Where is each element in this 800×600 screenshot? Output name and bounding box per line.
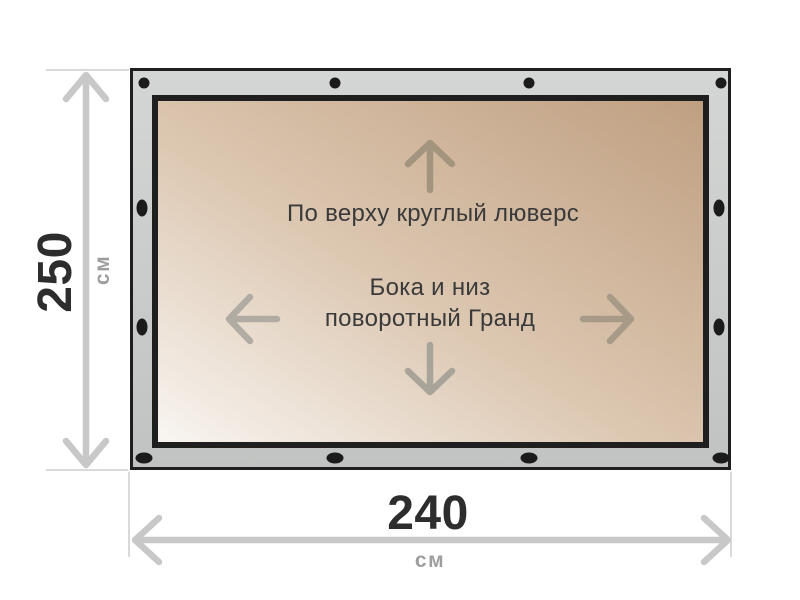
sides-bottom-label: Бока и низ поворотный Гранд bbox=[130, 272, 730, 334]
grommet-icon bbox=[330, 78, 341, 89]
grommet-icon bbox=[713, 453, 730, 464]
sides-bottom-label-line1: Бока и низ bbox=[130, 272, 730, 303]
sides-bottom-label-line2: поворотный Гранд bbox=[130, 303, 730, 334]
grommet-icon bbox=[136, 453, 153, 464]
grommet-icon bbox=[327, 453, 344, 464]
top-edge-label: По верху круглый люверс bbox=[133, 200, 733, 227]
grommet-icon bbox=[521, 453, 538, 464]
grommet-icon bbox=[524, 78, 535, 89]
height-dimension-value: 250 bbox=[31, 122, 81, 422]
grommet-icon bbox=[716, 78, 727, 89]
height-dimension-unit: см bbox=[91, 220, 115, 320]
width-dimension-value: 240 bbox=[278, 489, 578, 539]
tarp-dimension-diagram: По верху круглый люверс Бока и низ повор… bbox=[0, 0, 800, 600]
grommet-icon bbox=[139, 78, 150, 89]
width-dimension-unit: см bbox=[380, 549, 480, 573]
